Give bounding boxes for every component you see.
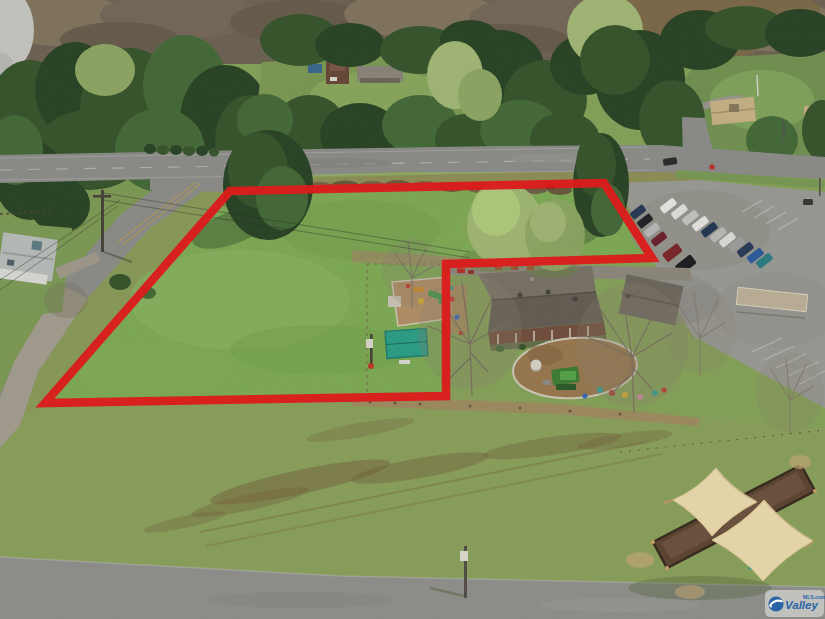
photo-grain-overlay (0, 0, 825, 619)
aerial-photo: Valley MLS.com (0, 0, 825, 619)
